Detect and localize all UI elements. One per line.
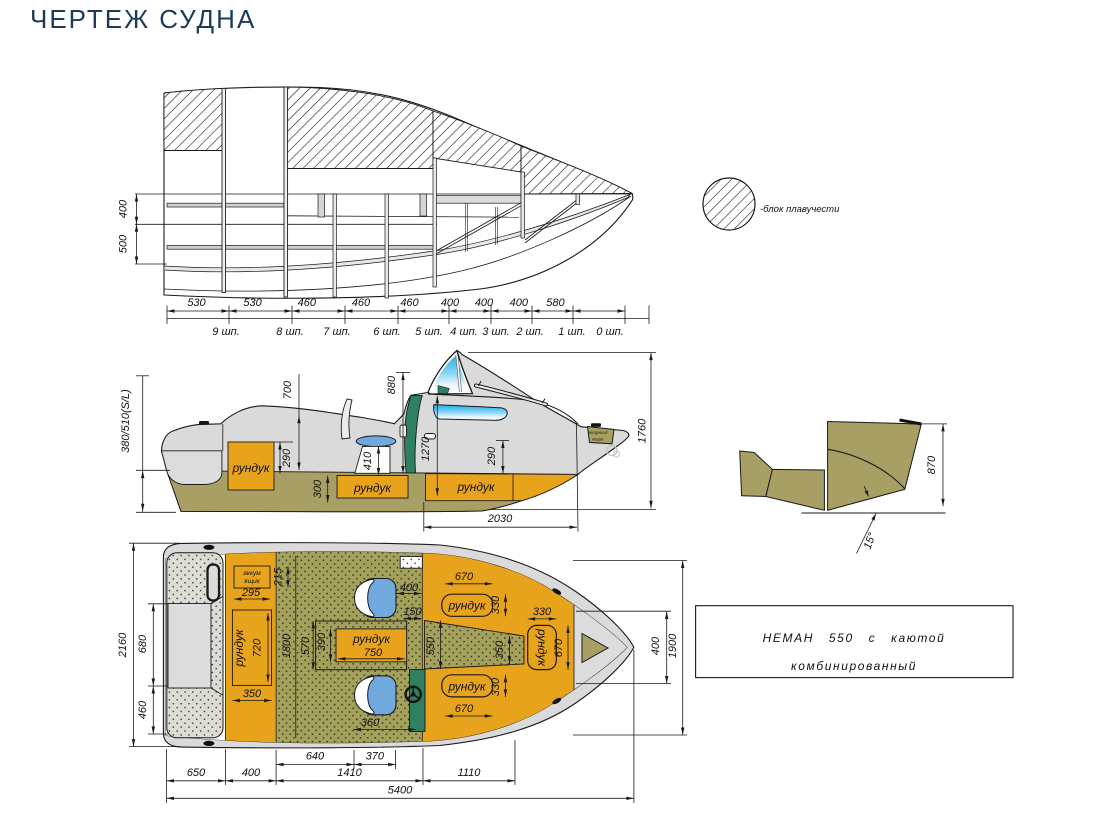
svg-text:460: 460 — [298, 297, 317, 309]
svg-text:400: 400 — [242, 767, 261, 779]
svg-text:400: 400 — [118, 199, 130, 218]
svg-text:640: 640 — [306, 751, 325, 763]
svg-text:рундук: рундук — [352, 632, 391, 646]
svg-text:300: 300 — [312, 479, 324, 498]
svg-text:750: 750 — [364, 647, 383, 659]
svg-text:аккум: аккум — [243, 570, 261, 577]
svg-text:370: 370 — [366, 751, 385, 763]
svg-text:530: 530 — [243, 297, 262, 309]
svg-text:530: 530 — [187, 297, 206, 309]
svg-text:360: 360 — [361, 717, 380, 729]
svg-text:1800: 1800 — [281, 633, 293, 658]
svg-text:ящик: ящик — [243, 578, 261, 585]
svg-text:390: 390 — [316, 632, 328, 651]
svg-text:5 шп.: 5 шп. — [415, 326, 442, 338]
svg-text:0 шп.: 0 шп. — [596, 326, 623, 338]
svg-text:15°: 15° — [862, 531, 879, 551]
svg-text:1410: 1410 — [337, 767, 362, 779]
svg-text:5400: 5400 — [388, 785, 413, 797]
svg-text:290: 290 — [486, 446, 498, 466]
svg-text:2030: 2030 — [487, 513, 513, 525]
svg-text:460: 460 — [137, 700, 149, 719]
svg-text:400: 400 — [475, 297, 494, 309]
svg-text:380/510(S/L): 380/510(S/L) — [120, 389, 132, 453]
svg-text:350: 350 — [243, 688, 262, 700]
svg-text:4 шп.: 4 шп. — [450, 326, 477, 338]
svg-text:295: 295 — [241, 587, 261, 599]
svg-text:670: 670 — [553, 638, 565, 657]
svg-text:рундук: рундук — [447, 680, 486, 694]
svg-text:330: 330 — [490, 677, 502, 696]
svg-text:якорный: якорный — [588, 429, 608, 436]
svg-text:580: 580 — [546, 297, 565, 309]
svg-text:1110: 1110 — [458, 767, 482, 779]
svg-text:670: 670 — [455, 703, 474, 715]
svg-text:ЧЕРТЕЖ СУДНА: ЧЕРТЕЖ СУДНА — [30, 4, 256, 34]
svg-text:рундук: рундук — [456, 480, 495, 494]
svg-text:150: 150 — [403, 606, 422, 618]
svg-text:720: 720 — [252, 638, 264, 657]
svg-text:330: 330 — [490, 595, 502, 614]
svg-text:650: 650 — [187, 767, 206, 779]
svg-text:рундук: рундук — [353, 481, 392, 495]
svg-text:3 шп.: 3 шп. — [482, 326, 509, 338]
svg-text:880: 880 — [386, 375, 398, 394]
svg-text:2160: 2160 — [117, 632, 129, 658]
svg-text:400: 400 — [441, 297, 460, 309]
svg-text:870: 870 — [926, 455, 938, 474]
svg-text:1760: 1760 — [637, 418, 649, 443]
svg-text:215: 215 — [273, 567, 285, 587]
svg-text:460: 460 — [352, 297, 371, 309]
svg-text:700: 700 — [282, 380, 294, 399]
svg-text:330: 330 — [533, 606, 552, 618]
svg-text:рундук: рундук — [231, 461, 270, 475]
svg-text:1270: 1270 — [420, 436, 432, 461]
svg-text:-блок плавучести: -блок плавучести — [760, 204, 840, 215]
svg-text:570: 570 — [300, 636, 312, 655]
svg-text:350: 350 — [494, 640, 506, 659]
svg-text:400: 400 — [650, 636, 662, 655]
svg-text:НЕМАН 550 с каютой: НЕМАН 550 с каютой — [763, 631, 946, 645]
svg-text:670: 670 — [455, 571, 474, 583]
svg-text:460: 460 — [400, 297, 419, 309]
svg-text:680: 680 — [137, 634, 149, 653]
svg-text:комбинированный: комбинированный — [791, 659, 917, 673]
svg-text:6 шп.: 6 шп. — [373, 326, 400, 338]
svg-text:2 шп.: 2 шп. — [515, 326, 543, 338]
svg-text:7 шп.: 7 шп. — [323, 326, 350, 338]
svg-text:8 шп.: 8 шп. — [276, 326, 303, 338]
svg-text:рундук: рундук — [447, 599, 486, 613]
svg-text:рундук: рундук — [535, 628, 549, 667]
svg-text:1 шп.: 1 шп. — [558, 326, 585, 338]
svg-text:ящик: ящик — [591, 438, 604, 443]
svg-text:рундук: рундук — [232, 628, 246, 667]
svg-text:9 шп.: 9 шп. — [212, 326, 239, 338]
svg-text:550: 550 — [425, 636, 437, 655]
svg-text:1900: 1900 — [667, 633, 679, 658]
svg-text:400: 400 — [510, 297, 529, 309]
svg-text:500: 500 — [118, 234, 130, 253]
svg-text:410: 410 — [362, 451, 374, 470]
svg-text:290: 290 — [281, 448, 293, 468]
